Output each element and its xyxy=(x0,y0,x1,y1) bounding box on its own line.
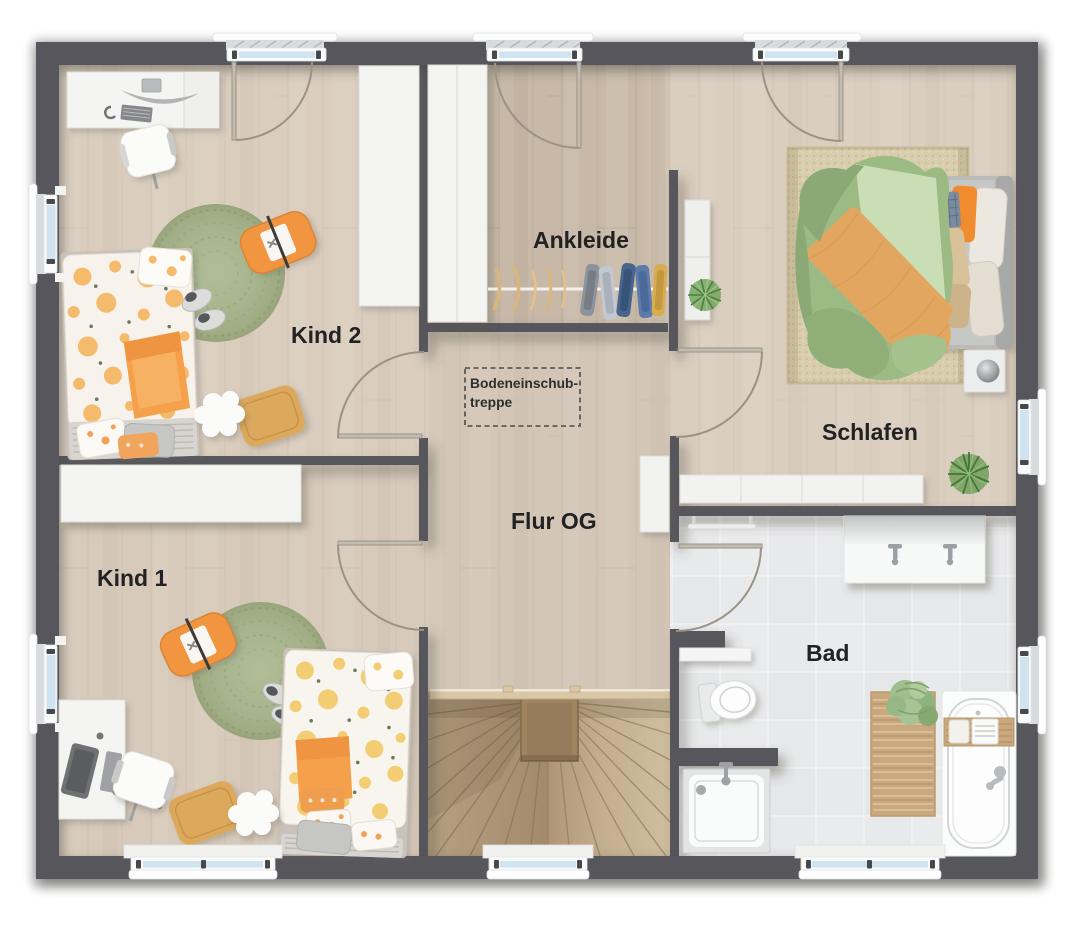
svg-text:Kind 2: Kind 2 xyxy=(291,322,361,348)
svg-text:Bodeneinschub-: Bodeneinschub- xyxy=(470,376,578,391)
svg-text:treppe: treppe xyxy=(470,395,512,410)
svg-text:Flur OG: Flur OG xyxy=(511,508,597,534)
svg-text:Kind 1: Kind 1 xyxy=(97,565,167,591)
svg-text:Schlafen: Schlafen xyxy=(822,419,918,445)
svg-text:Ankleide: Ankleide xyxy=(533,227,629,253)
svg-text:Bad: Bad xyxy=(806,640,849,666)
